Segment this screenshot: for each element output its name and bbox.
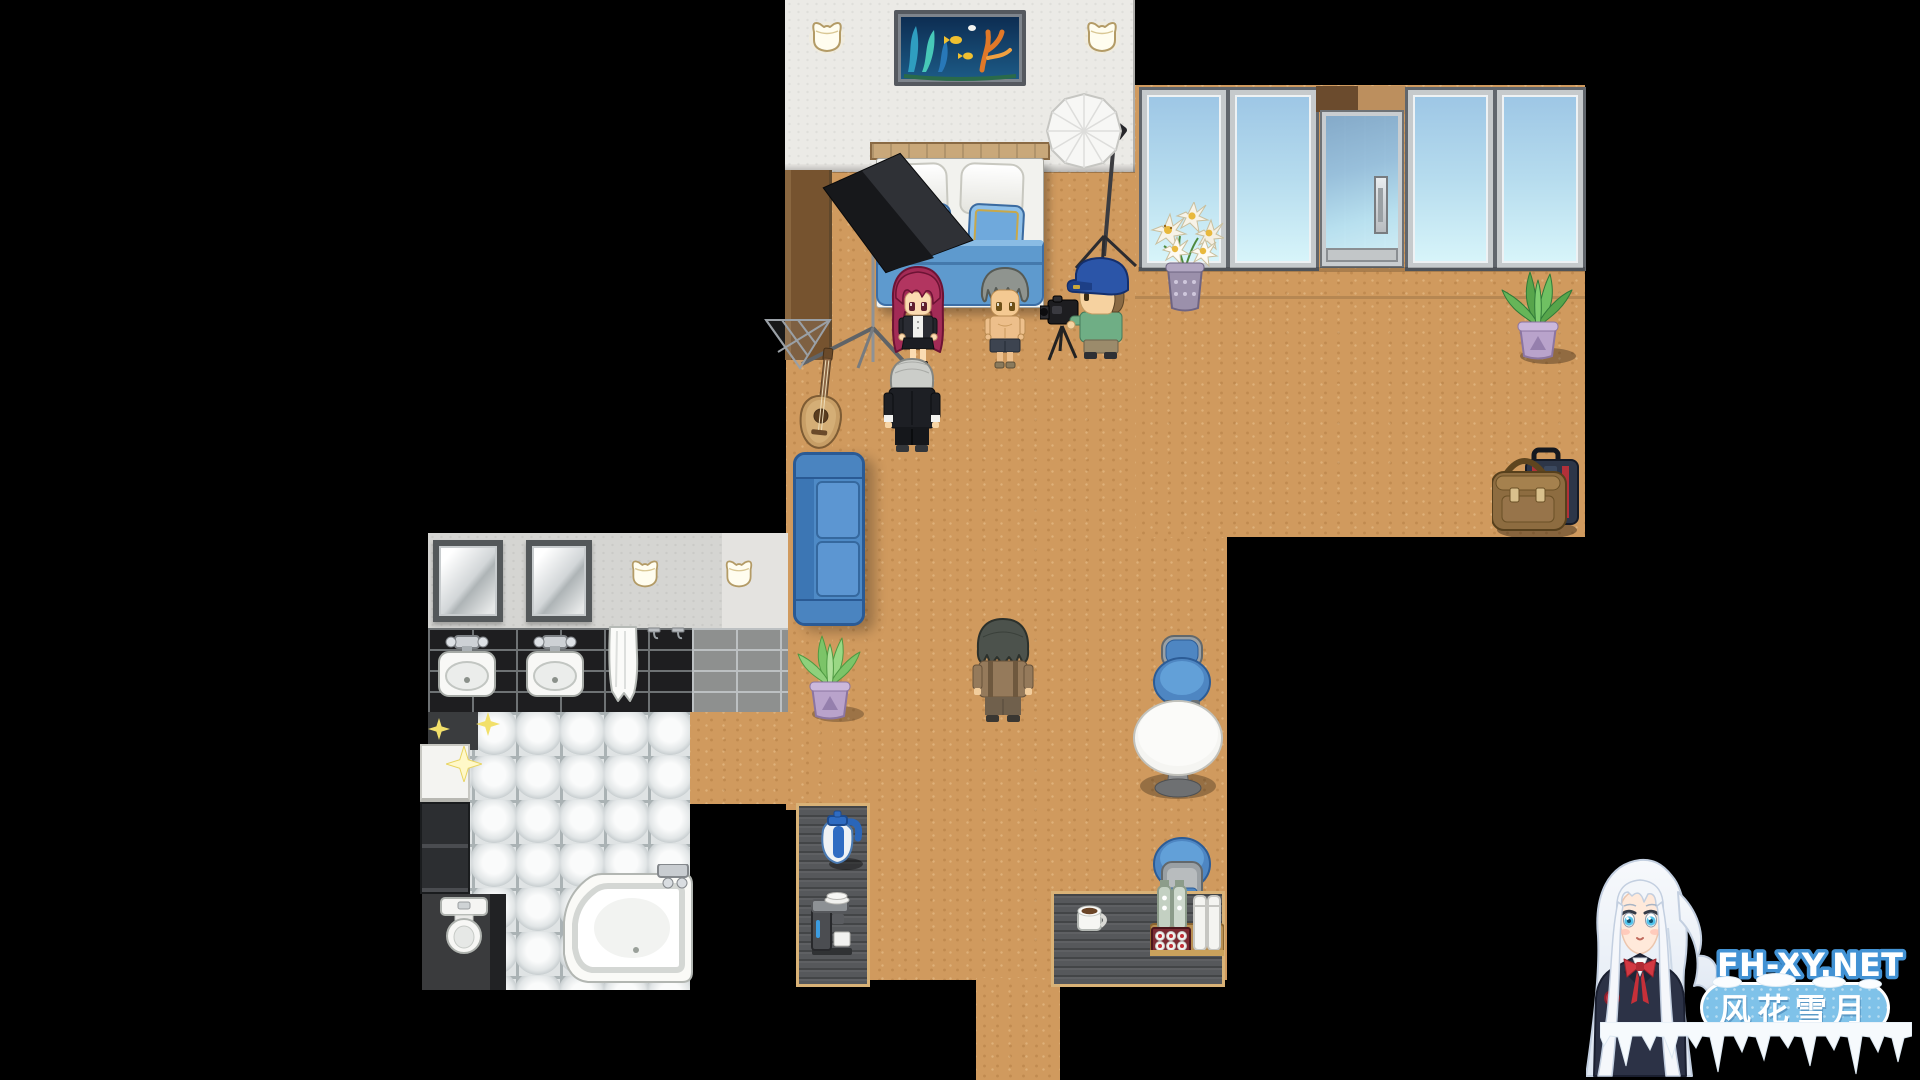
sparkle-icon: [476, 712, 500, 736]
sink: [435, 634, 499, 700]
sofa-armrest: [796, 455, 862, 479]
floor-corridor: [690, 712, 800, 804]
floor-bottom-exit: [976, 978, 1060, 1080]
wall-lamp-icon: [808, 16, 846, 56]
snow-cap: [1812, 976, 1846, 988]
game-screenshot: FH-XY.NET 风花雪月: [0, 0, 1920, 1080]
window: [1230, 90, 1316, 268]
sofa-backrest: [796, 455, 814, 623]
sparkle-icon: [446, 746, 482, 782]
door-lintel: [1358, 86, 1406, 112]
toilet: [438, 896, 490, 956]
reef-painting: [894, 10, 1026, 86]
wall-hook-icon: [670, 626, 686, 642]
door-handle-slot: [1378, 188, 1383, 222]
character-silver-haired-butler[interactable]: [881, 357, 943, 457]
coffee-machine: [808, 892, 860, 958]
snow-cap: [1712, 976, 1742, 988]
blue-kettle: [806, 808, 868, 872]
character-shirtless-man[interactable]: [974, 266, 1036, 376]
character-dark-haired-man[interactable]: [969, 617, 1037, 729]
toilet-divider-wall: [490, 894, 506, 990]
bottle-tray: [1150, 880, 1224, 958]
bathroom-mirror: [526, 540, 592, 622]
snow-cap: [1858, 979, 1882, 989]
guitar: [792, 346, 852, 452]
umbrella-light-icon: [1046, 88, 1150, 276]
corner-bathtub: [556, 864, 698, 990]
potted-plant: [1492, 264, 1582, 364]
hand-towel: [605, 625, 641, 705]
wall-lamp-icon: [722, 554, 756, 592]
watermark: FH-XY.NET 风花雪月: [1586, 850, 1920, 1080]
sofa-cushion: [816, 481, 860, 539]
bathroom-tile-band-gray: [692, 628, 788, 712]
bathroom-mirror: [433, 540, 503, 622]
window: [1408, 90, 1493, 268]
door-lintel: [1316, 86, 1358, 112]
wall-hook-icon: [646, 626, 662, 642]
round-table: [1132, 698, 1228, 810]
luggage: [1492, 444, 1586, 540]
potted-plant: [790, 624, 868, 724]
lily-vase: [1144, 202, 1224, 314]
blue-sofa: [793, 452, 865, 626]
character-cameraman[interactable]: [1040, 256, 1140, 368]
sparkle-icon: [428, 718, 450, 740]
coffee-mug: [1074, 902, 1112, 936]
wall-lamp-icon: [1083, 16, 1121, 56]
sink: [523, 634, 587, 700]
site-url-text: FH-XY.NET: [1717, 946, 1903, 984]
icicles: [1600, 1022, 1912, 1080]
wall-lamp-icon: [628, 554, 662, 592]
door-kick-plate: [1326, 248, 1398, 262]
snow-cap: [1756, 973, 1796, 987]
window: [1497, 90, 1583, 268]
sofa-armrest: [796, 599, 862, 623]
sofa-cushion: [816, 541, 860, 597]
vanity-cabinet: [420, 802, 470, 894]
